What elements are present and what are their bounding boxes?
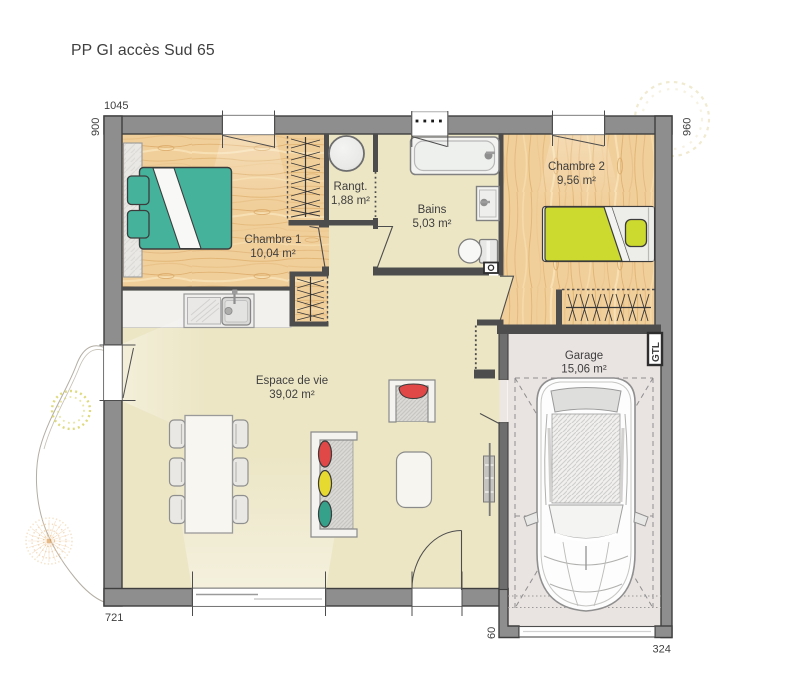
svg-text:721: 721 xyxy=(105,612,123,624)
svg-text:PP GI accès Sud 65: PP GI accès Sud 65 xyxy=(71,42,215,59)
svg-text:1,88 m²: 1,88 m² xyxy=(331,195,370,207)
svg-text:900: 900 xyxy=(90,118,102,136)
svg-text:960: 960 xyxy=(682,118,694,136)
svg-text:39,02 m²: 39,02 m² xyxy=(269,389,315,401)
svg-text:Bains: Bains xyxy=(418,204,447,216)
svg-text:Chambre 1: Chambre 1 xyxy=(245,234,302,246)
svg-text:Chambre 2: Chambre 2 xyxy=(548,161,605,173)
svg-text:9,56 m²: 9,56 m² xyxy=(557,175,596,187)
svg-text:15,06 m²: 15,06 m² xyxy=(561,364,607,376)
svg-text:60: 60 xyxy=(486,627,498,639)
svg-text:1045: 1045 xyxy=(104,100,128,112)
svg-text:Espace de vie: Espace de vie xyxy=(256,375,328,387)
svg-text:GTL: GTL xyxy=(651,342,662,362)
svg-text:10,04 m²: 10,04 m² xyxy=(250,248,296,260)
svg-text:5,03 m²: 5,03 m² xyxy=(413,218,452,230)
svg-text:Garage: Garage xyxy=(565,350,603,362)
svg-text:324: 324 xyxy=(653,644,671,656)
svg-text:Rangt.: Rangt. xyxy=(334,181,368,193)
